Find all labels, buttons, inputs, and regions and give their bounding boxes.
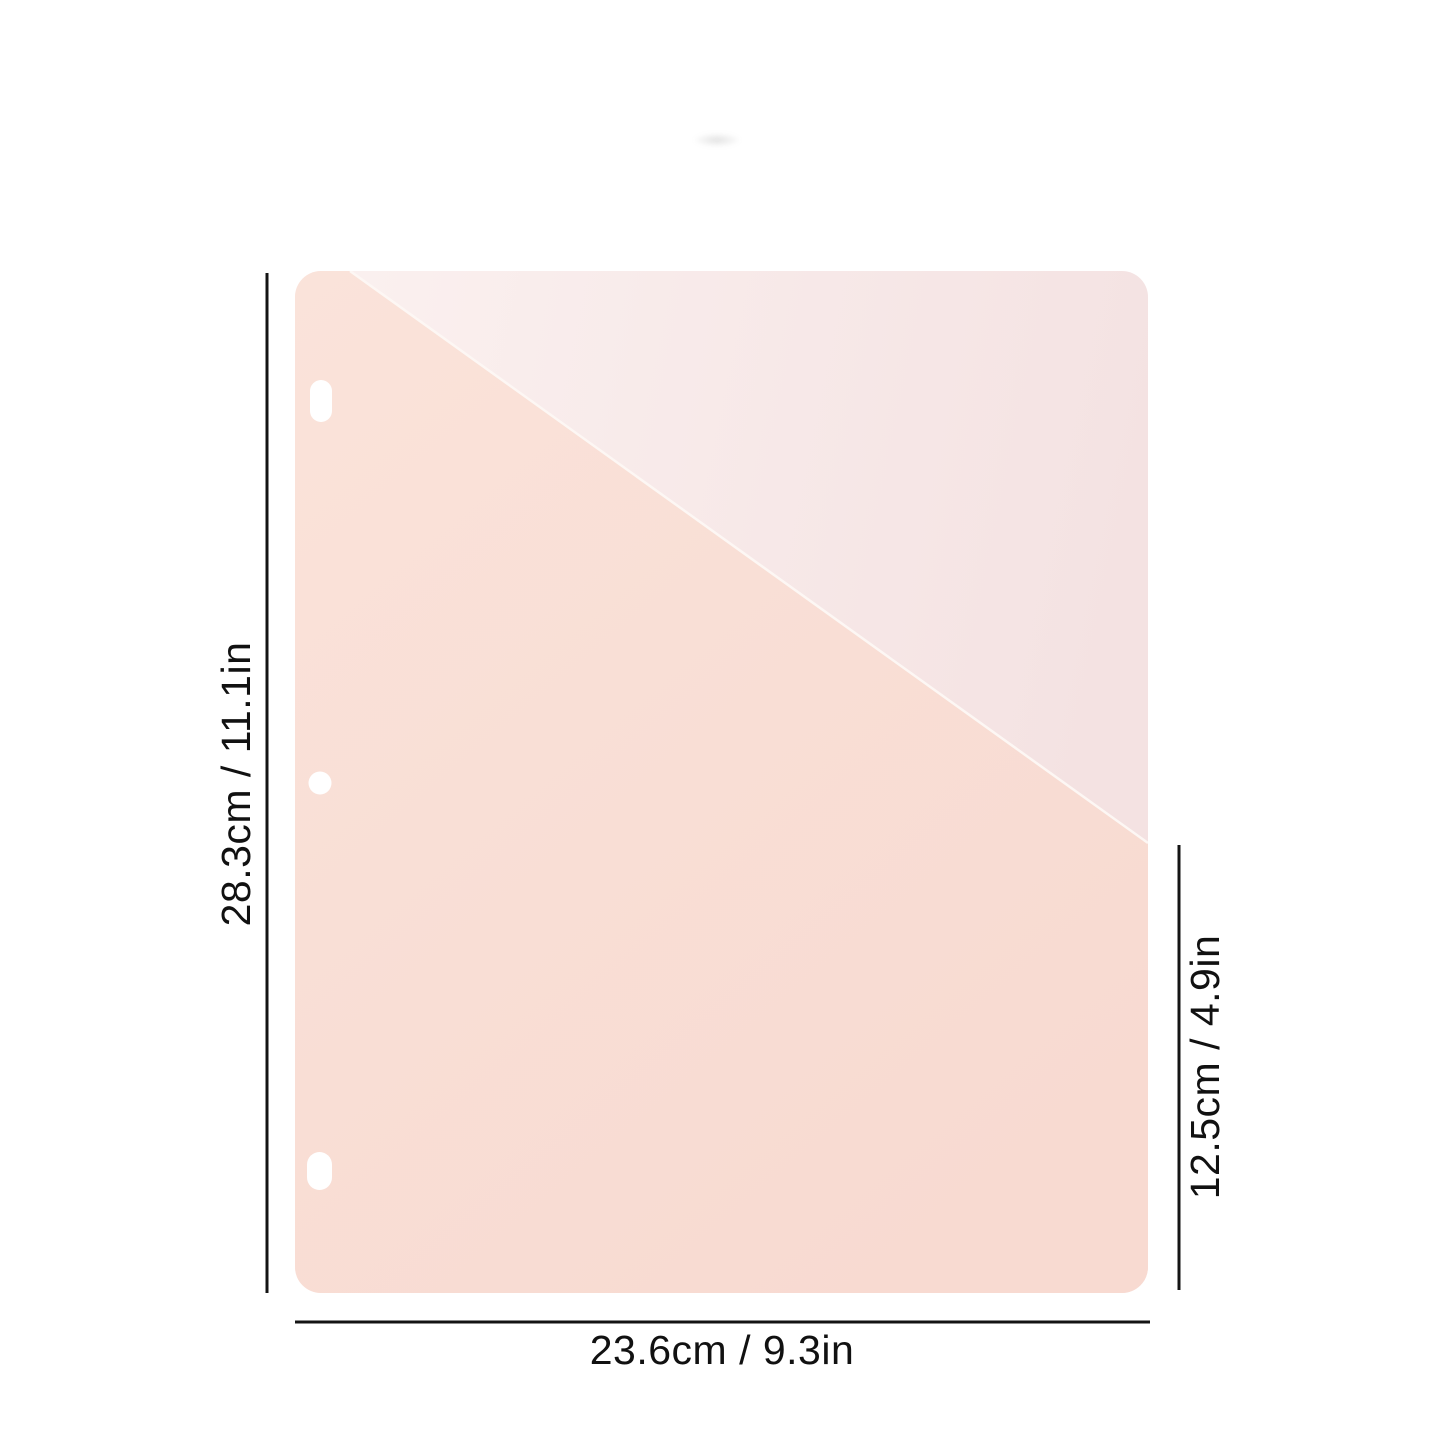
product-dimension-diagram: 28.3cm / 11.1in 12.5cm / 4.9in 23.6cm / … (0, 0, 1445, 1445)
pocket-height-dimension-label: 12.5cm / 4.9in (1181, 817, 1229, 1317)
height-dimension-label: 28.3cm / 11.1in (212, 484, 260, 1084)
width-dimension-label: 23.6cm / 9.3in (422, 1326, 1022, 1374)
binder-hole-middle (309, 772, 332, 795)
binder-hole-top (310, 380, 332, 422)
binder-hole-bottom (307, 1152, 332, 1190)
